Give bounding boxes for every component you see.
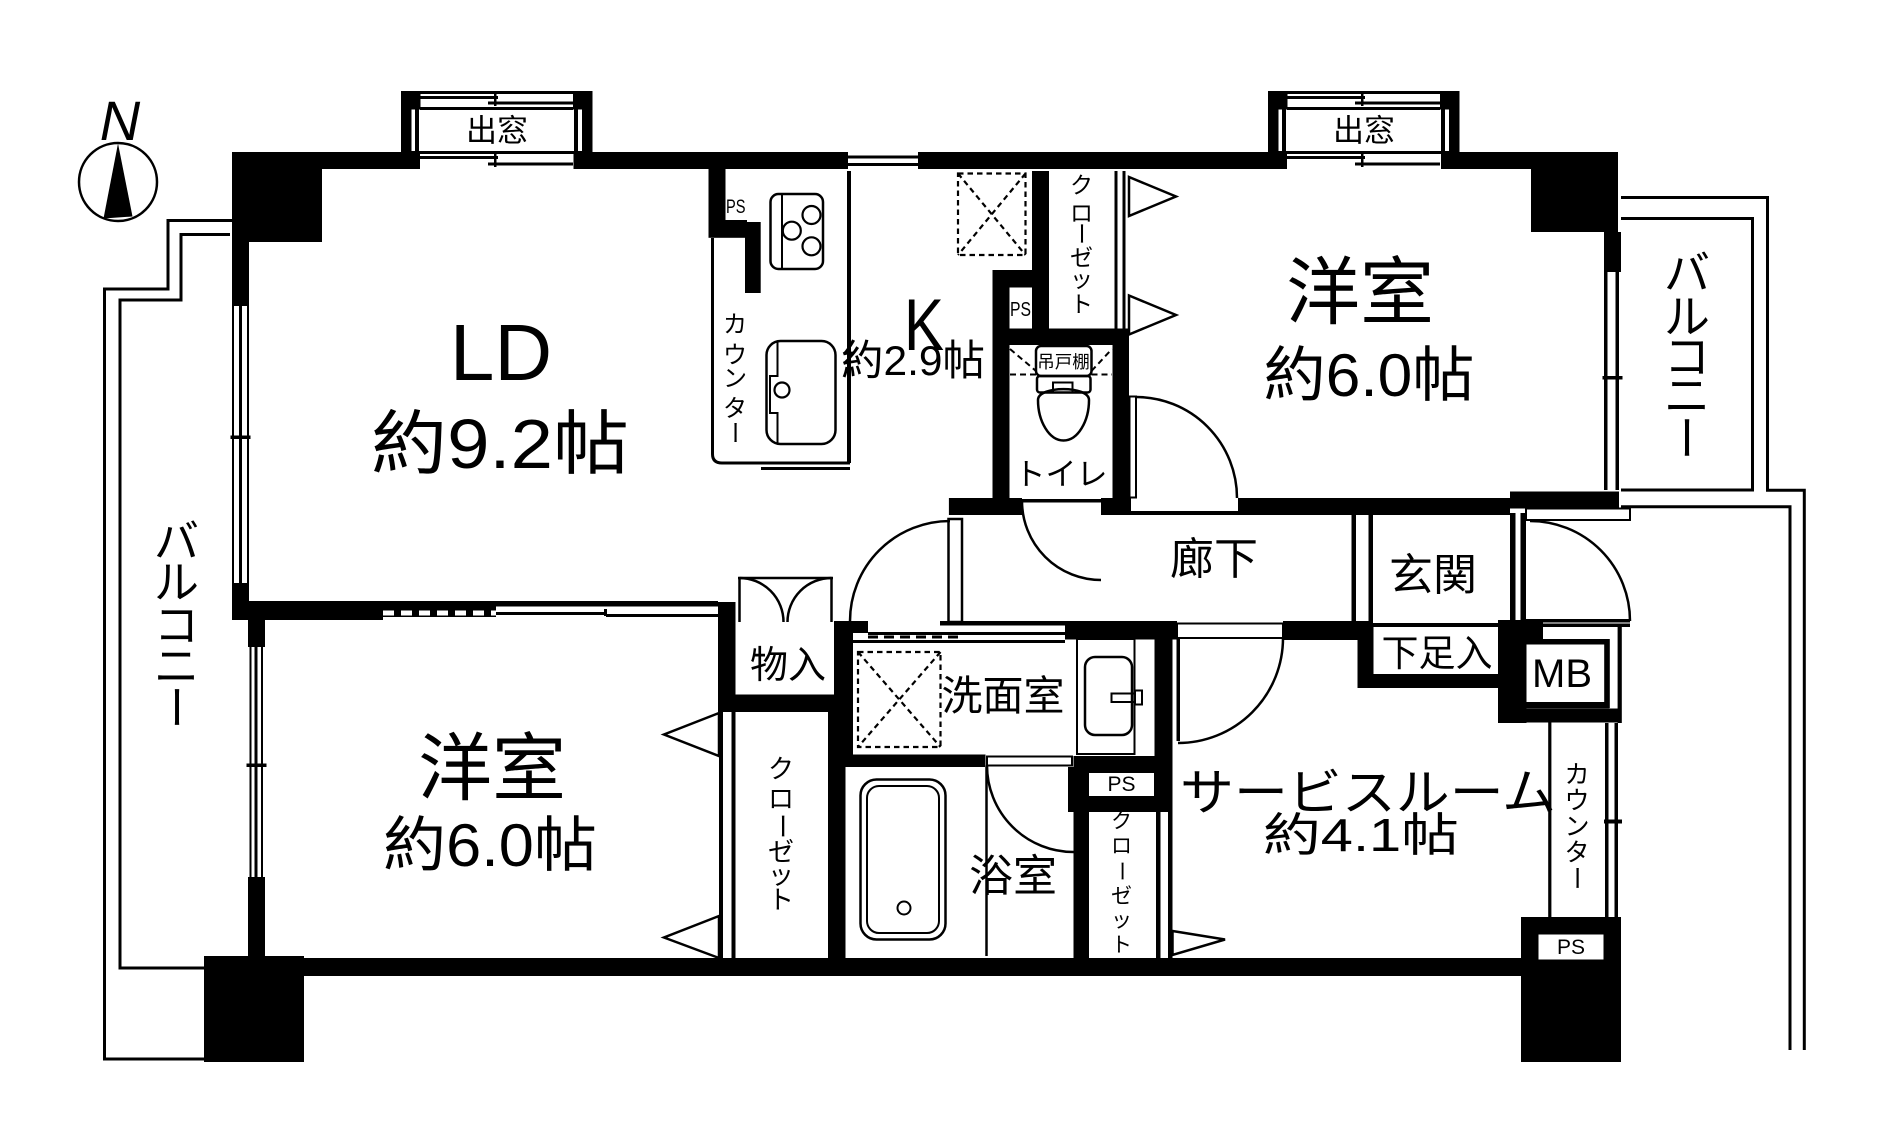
svg-text:ー: ー <box>767 813 797 839</box>
svg-text:玄関: 玄関 <box>1389 551 1477 600</box>
svg-text:カ: カ <box>1564 761 1589 789</box>
svg-text:ウ: ウ <box>1564 787 1589 815</box>
svg-text:出窓: 出窓 <box>466 114 528 149</box>
svg-text:約6.0帖: 約6.0帖 <box>1264 342 1475 409</box>
svg-text:LD: LD <box>450 308 552 397</box>
svg-text:ー: ー <box>1110 861 1133 882</box>
svg-text:ー: ー <box>721 421 748 445</box>
svg-text:約6.0帖: 約6.0帖 <box>383 812 597 879</box>
svg-text:ッ: ッ <box>1070 266 1093 292</box>
svg-text:ン: ン <box>1564 813 1589 841</box>
svg-text:タ: タ <box>723 396 747 423</box>
svg-text:ー: ー <box>150 684 201 729</box>
svg-text:約2.9帖: 約2.9帖 <box>841 337 985 384</box>
svg-text:約9.2帖: 約9.2帖 <box>371 405 629 483</box>
svg-text:ク: ク <box>1070 172 1093 198</box>
svg-text:MB: MB <box>1532 652 1592 696</box>
svg-text:物入: 物入 <box>750 645 826 687</box>
svg-text:PS: PS <box>1557 936 1585 959</box>
svg-text:ー: ー <box>1660 415 1712 461</box>
svg-text:PS: PS <box>726 197 746 218</box>
svg-text:ク: ク <box>768 754 794 784</box>
svg-text:洋室: 洋室 <box>418 727 566 810</box>
svg-text:トイレ: トイレ <box>1015 457 1108 492</box>
svg-text:ロ: ロ <box>768 784 794 814</box>
svg-text:出窓: 出窓 <box>1333 114 1395 149</box>
svg-text:ト: ト <box>1070 291 1093 317</box>
svg-text:廊下: 廊下 <box>1170 535 1258 584</box>
svg-text:ー: ー <box>1562 865 1590 890</box>
svg-text:カ: カ <box>723 312 747 339</box>
svg-text:N: N <box>100 89 141 152</box>
svg-text:ロ: ロ <box>1111 835 1132 858</box>
svg-text:下足入: 下足入 <box>1382 633 1493 674</box>
svg-text:ト: ト <box>768 885 794 915</box>
svg-text:浴室: 浴室 <box>969 852 1057 901</box>
svg-text:PS: PS <box>1010 299 1031 321</box>
svg-text:タ: タ <box>1564 839 1589 867</box>
svg-text:PS: PS <box>1107 773 1135 796</box>
svg-text:ッ: ッ <box>1111 909 1132 932</box>
svg-text:ク: ク <box>1111 810 1132 833</box>
svg-text:ト: ト <box>1111 934 1132 957</box>
svg-text:ー: ー <box>1069 222 1095 245</box>
svg-text:ゼ: ゼ <box>1111 885 1132 908</box>
svg-text:約4.1帖: 約4.1帖 <box>1263 809 1459 861</box>
svg-text:洋室: 洋室 <box>1286 251 1434 334</box>
svg-text:吊戸棚: 吊戸棚 <box>1037 352 1090 372</box>
svg-text:ン: ン <box>723 366 747 393</box>
svg-text:洗面室: 洗面室 <box>942 673 1065 719</box>
